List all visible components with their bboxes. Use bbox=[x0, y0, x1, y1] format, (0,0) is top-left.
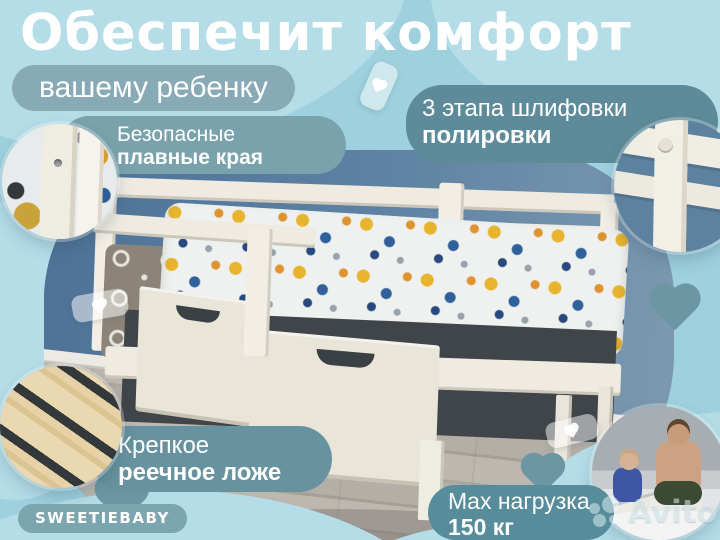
callout-sanding-line2: полировки bbox=[422, 122, 627, 149]
drawer-handle-cutout bbox=[316, 349, 374, 369]
callout-safe-edges-line1: Безопасные bbox=[117, 123, 263, 146]
bed-drawer-left bbox=[135, 286, 257, 427]
avito-logo-dots-icon bbox=[588, 494, 624, 530]
wood-plug bbox=[658, 138, 673, 153]
callout-safe-edges-line2: плавные края bbox=[117, 146, 263, 169]
heart-icon bbox=[565, 425, 577, 437]
callout-max-load: Max нагрузка 150 кг bbox=[428, 485, 614, 540]
brand-pill: SWEETIEBABY bbox=[18, 504, 187, 533]
callout-slatted-base-line2: реечное ложе bbox=[118, 459, 281, 486]
drawer-handle-cutout bbox=[176, 305, 220, 324]
screw-detail bbox=[54, 159, 62, 167]
callout-max-load-line1: Max нагрузка bbox=[448, 488, 590, 514]
callout-slatted-base: Крепкое реечное ложе bbox=[92, 426, 332, 492]
detail-circle-smooth-corner bbox=[2, 124, 117, 239]
headline-subtitle-pill: вашему ребенку bbox=[12, 65, 295, 111]
corner-post bbox=[39, 124, 78, 239]
detail-circle-slats bbox=[0, 366, 122, 488]
ad-canvas: Безопасные плавные края 3 этапа шлифовки… bbox=[0, 0, 720, 540]
corner-post bbox=[76, 124, 106, 239]
callout-slatted-base-line1: Крепкое bbox=[118, 432, 281, 459]
heart-icon bbox=[93, 300, 106, 313]
headline-title: Обеспечит комфорт bbox=[20, 4, 710, 63]
callout-max-load-line2: 150 кг bbox=[448, 514, 590, 540]
avito-watermark-label: Avito bbox=[628, 494, 718, 530]
bed-guard-board bbox=[243, 228, 272, 357]
heart-tag-icon bbox=[357, 59, 400, 113]
avito-watermark: Avito bbox=[588, 494, 718, 530]
father-head bbox=[667, 419, 690, 444]
heart-icon bbox=[373, 80, 385, 92]
child-head bbox=[619, 449, 639, 470]
callout-sanding-line1: 3 этапа шлифовки bbox=[422, 95, 627, 122]
